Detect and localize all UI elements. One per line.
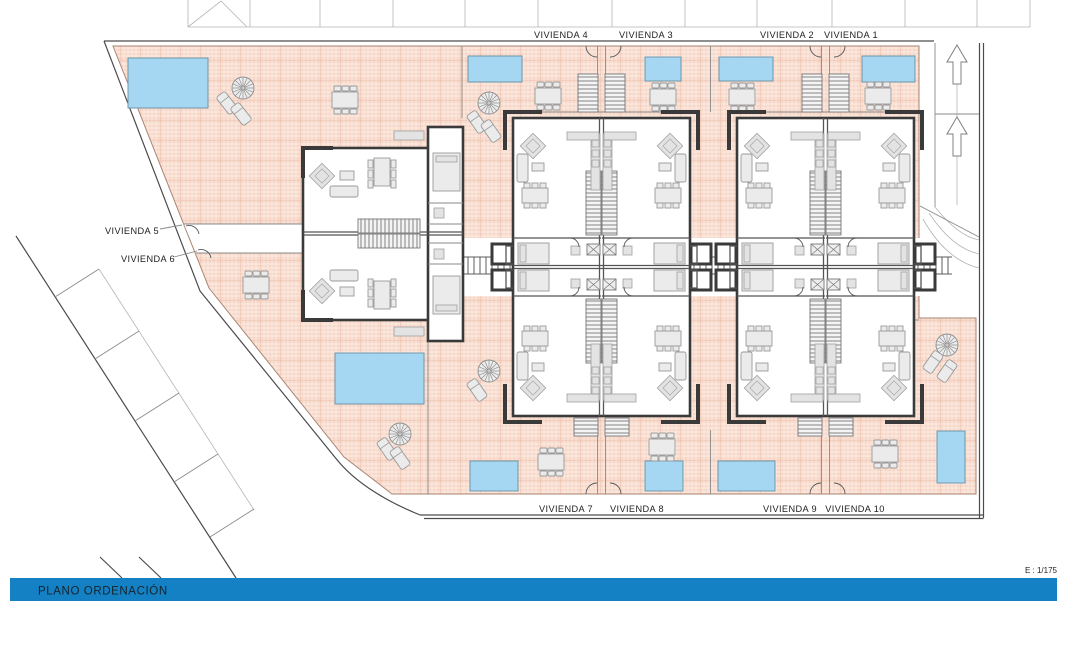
parasol-icon	[478, 92, 500, 114]
building-block-b	[716, 112, 935, 422]
neighbour-plots-band	[188, 0, 1030, 27]
label-vivienda-1: VIVIENDA 1	[824, 30, 878, 40]
patio-table-icon	[729, 83, 755, 111]
parasol-icon	[389, 423, 411, 445]
building-viviendas-5-6	[303, 127, 463, 341]
pool-vivienda1	[862, 56, 915, 82]
pool-vivienda8	[645, 461, 683, 491]
label-vivienda-10: VIVIENDA 10	[825, 504, 885, 514]
footer: E : 1/175 PLANO ORDENACIÓN	[10, 566, 1058, 601]
patio-table-icon	[538, 448, 564, 476]
site-plan: VIVIENDA 1 VIVIENDA 2 VIVIENDA 3 VIVIEND…	[0, 0, 1070, 650]
pool-vivienda5	[128, 58, 208, 108]
patio-table-icon	[535, 82, 561, 110]
plan-page: VIVIENDA 1 VIVIENDA 2 VIVIENDA 3 VIVIEND…	[0, 0, 1070, 650]
patio-table-icon	[872, 440, 898, 468]
pool-vivienda4	[468, 56, 522, 82]
pool-vivienda10	[937, 431, 965, 483]
pool-vivienda6	[335, 353, 424, 404]
parasol-icon	[232, 77, 254, 99]
patio-table-icon	[649, 433, 675, 461]
pool-vivienda3	[645, 57, 681, 81]
pool-vivienda2	[719, 57, 773, 81]
scale-note: E : 1/175	[1025, 566, 1058, 575]
pool-vivienda7	[470, 461, 518, 491]
direction-arrow-icon	[947, 45, 967, 84]
patio-table-icon	[332, 86, 358, 114]
direction-arrow-icon	[947, 117, 967, 156]
patio-table-icon	[865, 82, 891, 110]
label-vivienda-2: VIVIENDA 2	[760, 30, 814, 40]
building-block-a	[492, 112, 711, 422]
patio-table-icon	[650, 83, 676, 111]
label-vivienda-5: VIVIENDA 5	[105, 226, 159, 236]
label-vivienda-3: VIVIENDA 3	[619, 30, 673, 40]
patio-table-icon	[243, 271, 269, 299]
driveway-strip	[920, 43, 979, 268]
plan-title: PLANO ORDENACIÓN	[38, 585, 168, 598]
label-vivienda-4: VIVIENDA 4	[534, 30, 588, 40]
label-vivienda-8: VIVIENDA 8	[610, 504, 664, 514]
parasol-icon	[478, 360, 500, 382]
label-vivienda-7: VIVIENDA 7	[539, 504, 593, 514]
label-vivienda-6: VIVIENDA 6	[121, 254, 175, 264]
pool-vivienda9	[718, 461, 775, 491]
label-vivienda-9: VIVIENDA 9	[763, 504, 817, 514]
